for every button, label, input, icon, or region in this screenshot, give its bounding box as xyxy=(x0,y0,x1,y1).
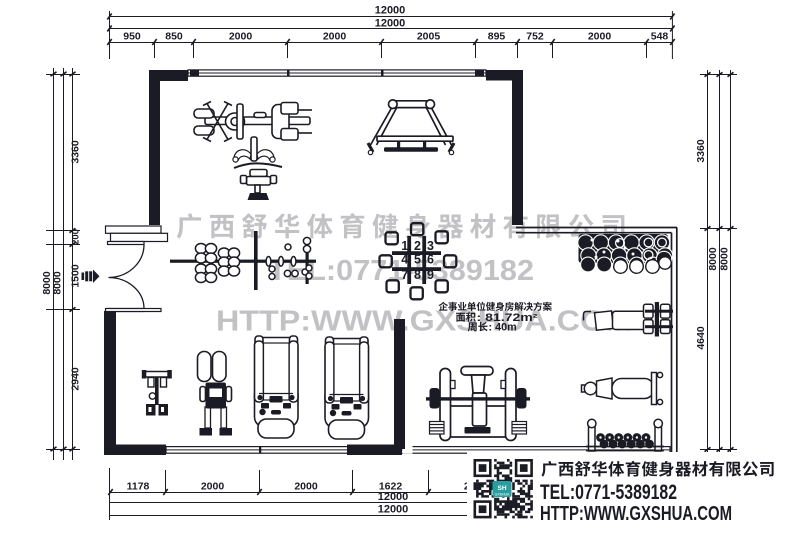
svg-text:2005: 2005 xyxy=(417,31,441,43)
svg-text:8000: 8000 xyxy=(52,271,64,295)
svg-text:548: 548 xyxy=(651,31,669,43)
svg-text:TEL:0771-5389182: TEL:0771-5389182 xyxy=(540,481,677,504)
svg-text:2000: 2000 xyxy=(201,481,225,493)
svg-text:2000: 2000 xyxy=(588,31,612,43)
svg-text:850: 850 xyxy=(165,31,183,43)
svg-text:5: 5 xyxy=(414,253,421,267)
svg-text:12000: 12000 xyxy=(378,504,409,516)
svg-text:8000: 8000 xyxy=(707,247,719,271)
svg-text:3360: 3360 xyxy=(695,139,707,163)
svg-text:2000: 2000 xyxy=(294,481,318,493)
svg-text:GXSHUA: GXSHUA xyxy=(495,493,510,497)
svg-text:HTTP:WWW.GXSHUA.COM: HTTP:WWW.GXSHUA.COM xyxy=(216,306,632,338)
svg-text:4: 4 xyxy=(401,253,408,267)
svg-text:HTTP:WWW.GXSHUA.COM: HTTP:WWW.GXSHUA.COM xyxy=(540,503,732,525)
svg-text:1: 1 xyxy=(401,239,408,253)
svg-text:12000: 12000 xyxy=(375,5,406,17)
svg-text:12000: 12000 xyxy=(378,491,409,503)
svg-text:9: 9 xyxy=(427,268,434,282)
svg-text:1178: 1178 xyxy=(127,481,150,493)
svg-text:2940: 2940 xyxy=(70,367,82,391)
svg-text:2000: 2000 xyxy=(323,31,347,43)
svg-text:12000: 12000 xyxy=(375,18,406,30)
svg-text:950: 950 xyxy=(123,31,141,43)
svg-text:8: 8 xyxy=(414,268,421,282)
svg-text:6: 6 xyxy=(427,253,434,267)
svg-text:2000: 2000 xyxy=(229,31,253,43)
svg-text:752: 752 xyxy=(526,31,544,43)
svg-text:3360: 3360 xyxy=(70,140,82,164)
svg-text:895: 895 xyxy=(488,31,506,43)
svg-text:2: 2 xyxy=(414,239,421,253)
svg-text:8000: 8000 xyxy=(719,247,731,271)
svg-text:7: 7 xyxy=(401,268,408,282)
svg-text:SH: SH xyxy=(497,485,506,492)
svg-text:4640: 4640 xyxy=(695,326,707,350)
svg-text:: 40m: : 40m xyxy=(489,322,517,334)
svg-text:200: 200 xyxy=(71,229,82,245)
svg-text:1500: 1500 xyxy=(70,264,82,288)
svg-text:3: 3 xyxy=(427,239,434,253)
